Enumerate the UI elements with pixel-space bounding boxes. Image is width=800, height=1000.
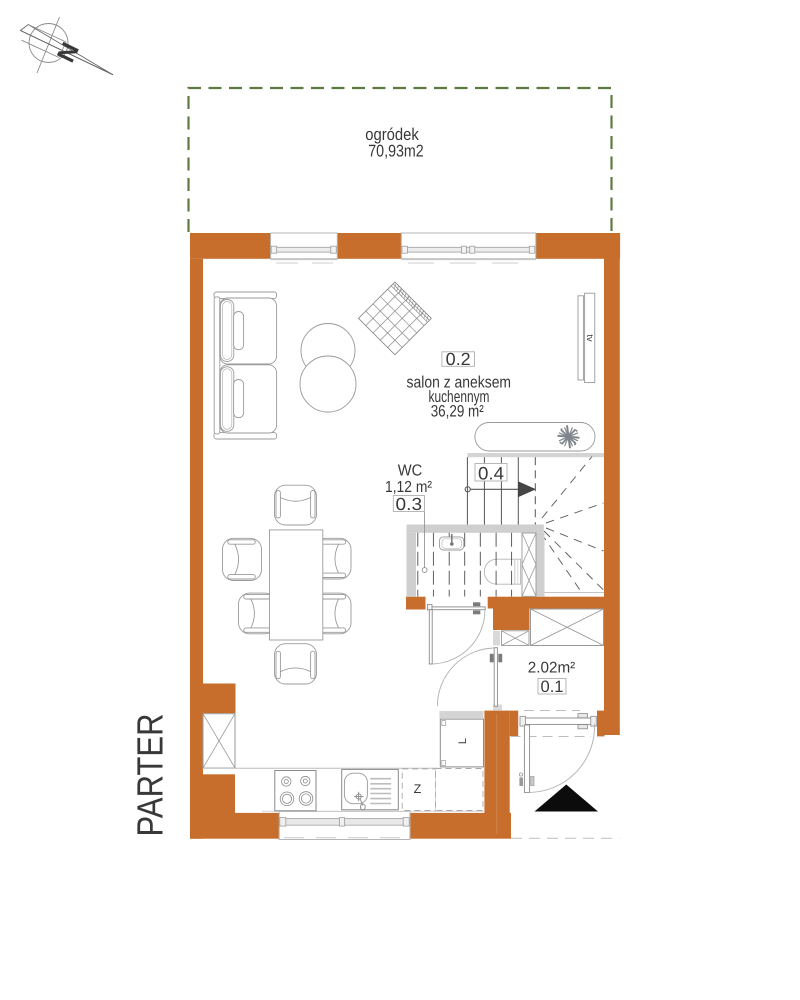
svg-text:N: N [52,38,85,67]
svg-text:0.3: 0.3 [396,494,423,514]
svg-text:PARTER: PARTER [130,714,171,837]
svg-text:0.4: 0.4 [478,464,504,484]
svg-text:L: L [457,738,469,744]
svg-text:Z: Z [414,782,422,796]
svg-text:36,29 m²: 36,29 m² [431,403,484,421]
svg-text:70,93m2: 70,93m2 [368,142,424,161]
svg-text:0.1: 0.1 [541,678,564,696]
svg-text:WC: WC [398,463,423,480]
svg-text:2.02m²: 2.02m² [528,660,576,677]
svg-text:0.2: 0.2 [446,349,471,369]
svg-text:tv: tv [585,334,595,342]
